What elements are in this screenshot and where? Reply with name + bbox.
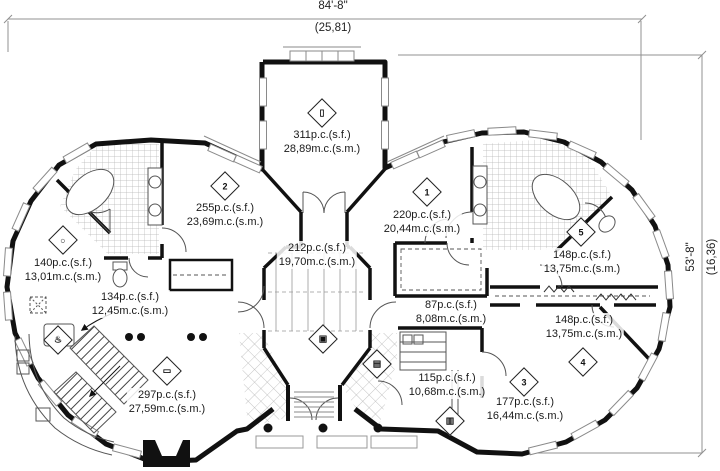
room-label-140: 140p.c.(s.f.) 13,01m.c.(s.m.) (23, 256, 103, 284)
room-label-134: 134p.c.(s.f.) 12,45m.c.(s.m.) (90, 290, 170, 318)
room-area-sm: 16,44m.c.(s.m.) (487, 410, 563, 422)
room-area-sf: 148p.c.(s.f.) (553, 249, 611, 261)
porch-column (264, 424, 273, 433)
room-area-sf: 140p.c.(s.f.) (34, 257, 92, 269)
appliance-2 (414, 335, 423, 344)
appliance-1 (403, 335, 412, 344)
room-area-sm: 19,70m.c.(s.m.) (279, 256, 355, 268)
room-label-297: 297p.c.(s.f.) 27,59m.c.(s.m.) (127, 388, 207, 416)
room-label-212: 212p.c.(s.f.) 19,70m.c.(s.m.) (277, 241, 357, 269)
dim-right-imperial: 53'-8" (685, 242, 697, 271)
porch-column (319, 424, 328, 433)
room-label-148-lower: 148p.c.(s.f.) 13,75m.c.(s.m.) (544, 313, 624, 341)
room-area-sf: 134p.c.(s.f.) (101, 291, 159, 303)
left-toilet (113, 269, 127, 287)
fireplace (143, 440, 190, 467)
room-area-sf: 297p.c.(s.f.) (138, 389, 196, 401)
room-area-sf: 255p.c.(s.f.) (196, 202, 254, 214)
dining-table (30, 297, 46, 313)
room-area-sf: 148p.c.(s.f.) (555, 314, 613, 326)
room-area-sm: 13,75m.c.(s.m.) (546, 328, 622, 340)
porch-column (374, 424, 383, 433)
right-sink-2 (474, 204, 486, 216)
room-label-177: 177p.c.(s.f.) 16,44m.c.(s.m.) (485, 395, 565, 423)
room-area-sm: 13,75m.c.(s.m.) (544, 263, 620, 275)
vestibule-steps (294, 392, 334, 417)
room-area-sm: 10,68m.c.(s.m.) (409, 386, 485, 398)
right-toilet (596, 213, 619, 236)
room-area-sm: 23,69m.c.(s.m.) (187, 216, 263, 228)
room-label-115: 115p.c.(s.f.) 10,68m.c.(s.m.) (407, 371, 487, 399)
room-area-sf: 220p.c.(s.f.) (393, 209, 451, 221)
room-label-311: 311p.c.(s.f.) 28,89m.c.(s.m.) (282, 128, 362, 156)
dim-right-metric: (16,36) (706, 239, 718, 275)
room-area-sf: 177p.c.(s.f.) (496, 396, 554, 408)
room-area-sf: 87p.c.(s.f.) (425, 299, 477, 311)
porch-step-2 (317, 436, 367, 448)
room-area-sm: 28,89m.c.(s.m.) (284, 143, 360, 155)
room-label-220: 220p.c.(s.f.) 20,44m.c.(s.m.) (382, 208, 462, 236)
porch-step-1 (256, 436, 303, 448)
room-area-sf: 311p.c.(s.f.) (293, 129, 350, 141)
room-area-sm: 8,08m.c.(s.m.) (416, 313, 486, 325)
floor-plan: 84'-8" (25,81) 53'-8" (16,36) 311p.c.(s.… (0, 0, 720, 471)
room-area-sm: 27,59m.c.(s.m.) (129, 403, 205, 415)
interior-column (199, 333, 207, 341)
room-area-sf: 115p.c.(s.f.) (418, 372, 475, 384)
room-label-255: 255p.c.(s.f.) 23,69m.c.(s.m.) (185, 201, 265, 229)
floor-plan-drawing (0, 0, 720, 471)
left-sink-1 (149, 176, 161, 188)
room-area-sm: 12,45m.c.(s.m.) (92, 305, 168, 317)
interior-column (187, 333, 195, 341)
room-label-148-upper: 148p.c.(s.f.) 13,75m.c.(s.m.) (542, 248, 622, 276)
room-area-sm: 20,44m.c.(s.m.) (384, 223, 460, 235)
closet-rod-zigzag-2 (596, 294, 636, 300)
porch-step-3 (371, 436, 417, 448)
interior-column (137, 333, 145, 341)
interior-column (125, 333, 133, 341)
room-label-87: 87p.c.(s.f.) 8,08m.c.(s.m.) (414, 298, 488, 326)
right-sink-1 (474, 176, 486, 188)
room-area-sm: 13,01m.c.(s.m.) (25, 271, 101, 283)
room-area-sf: 212p.c.(s.f.) (288, 242, 346, 254)
dim-top-metric: (25,81) (315, 22, 351, 34)
left-sink-2 (149, 204, 161, 216)
dim-top-imperial: 84'-8" (318, 0, 347, 12)
